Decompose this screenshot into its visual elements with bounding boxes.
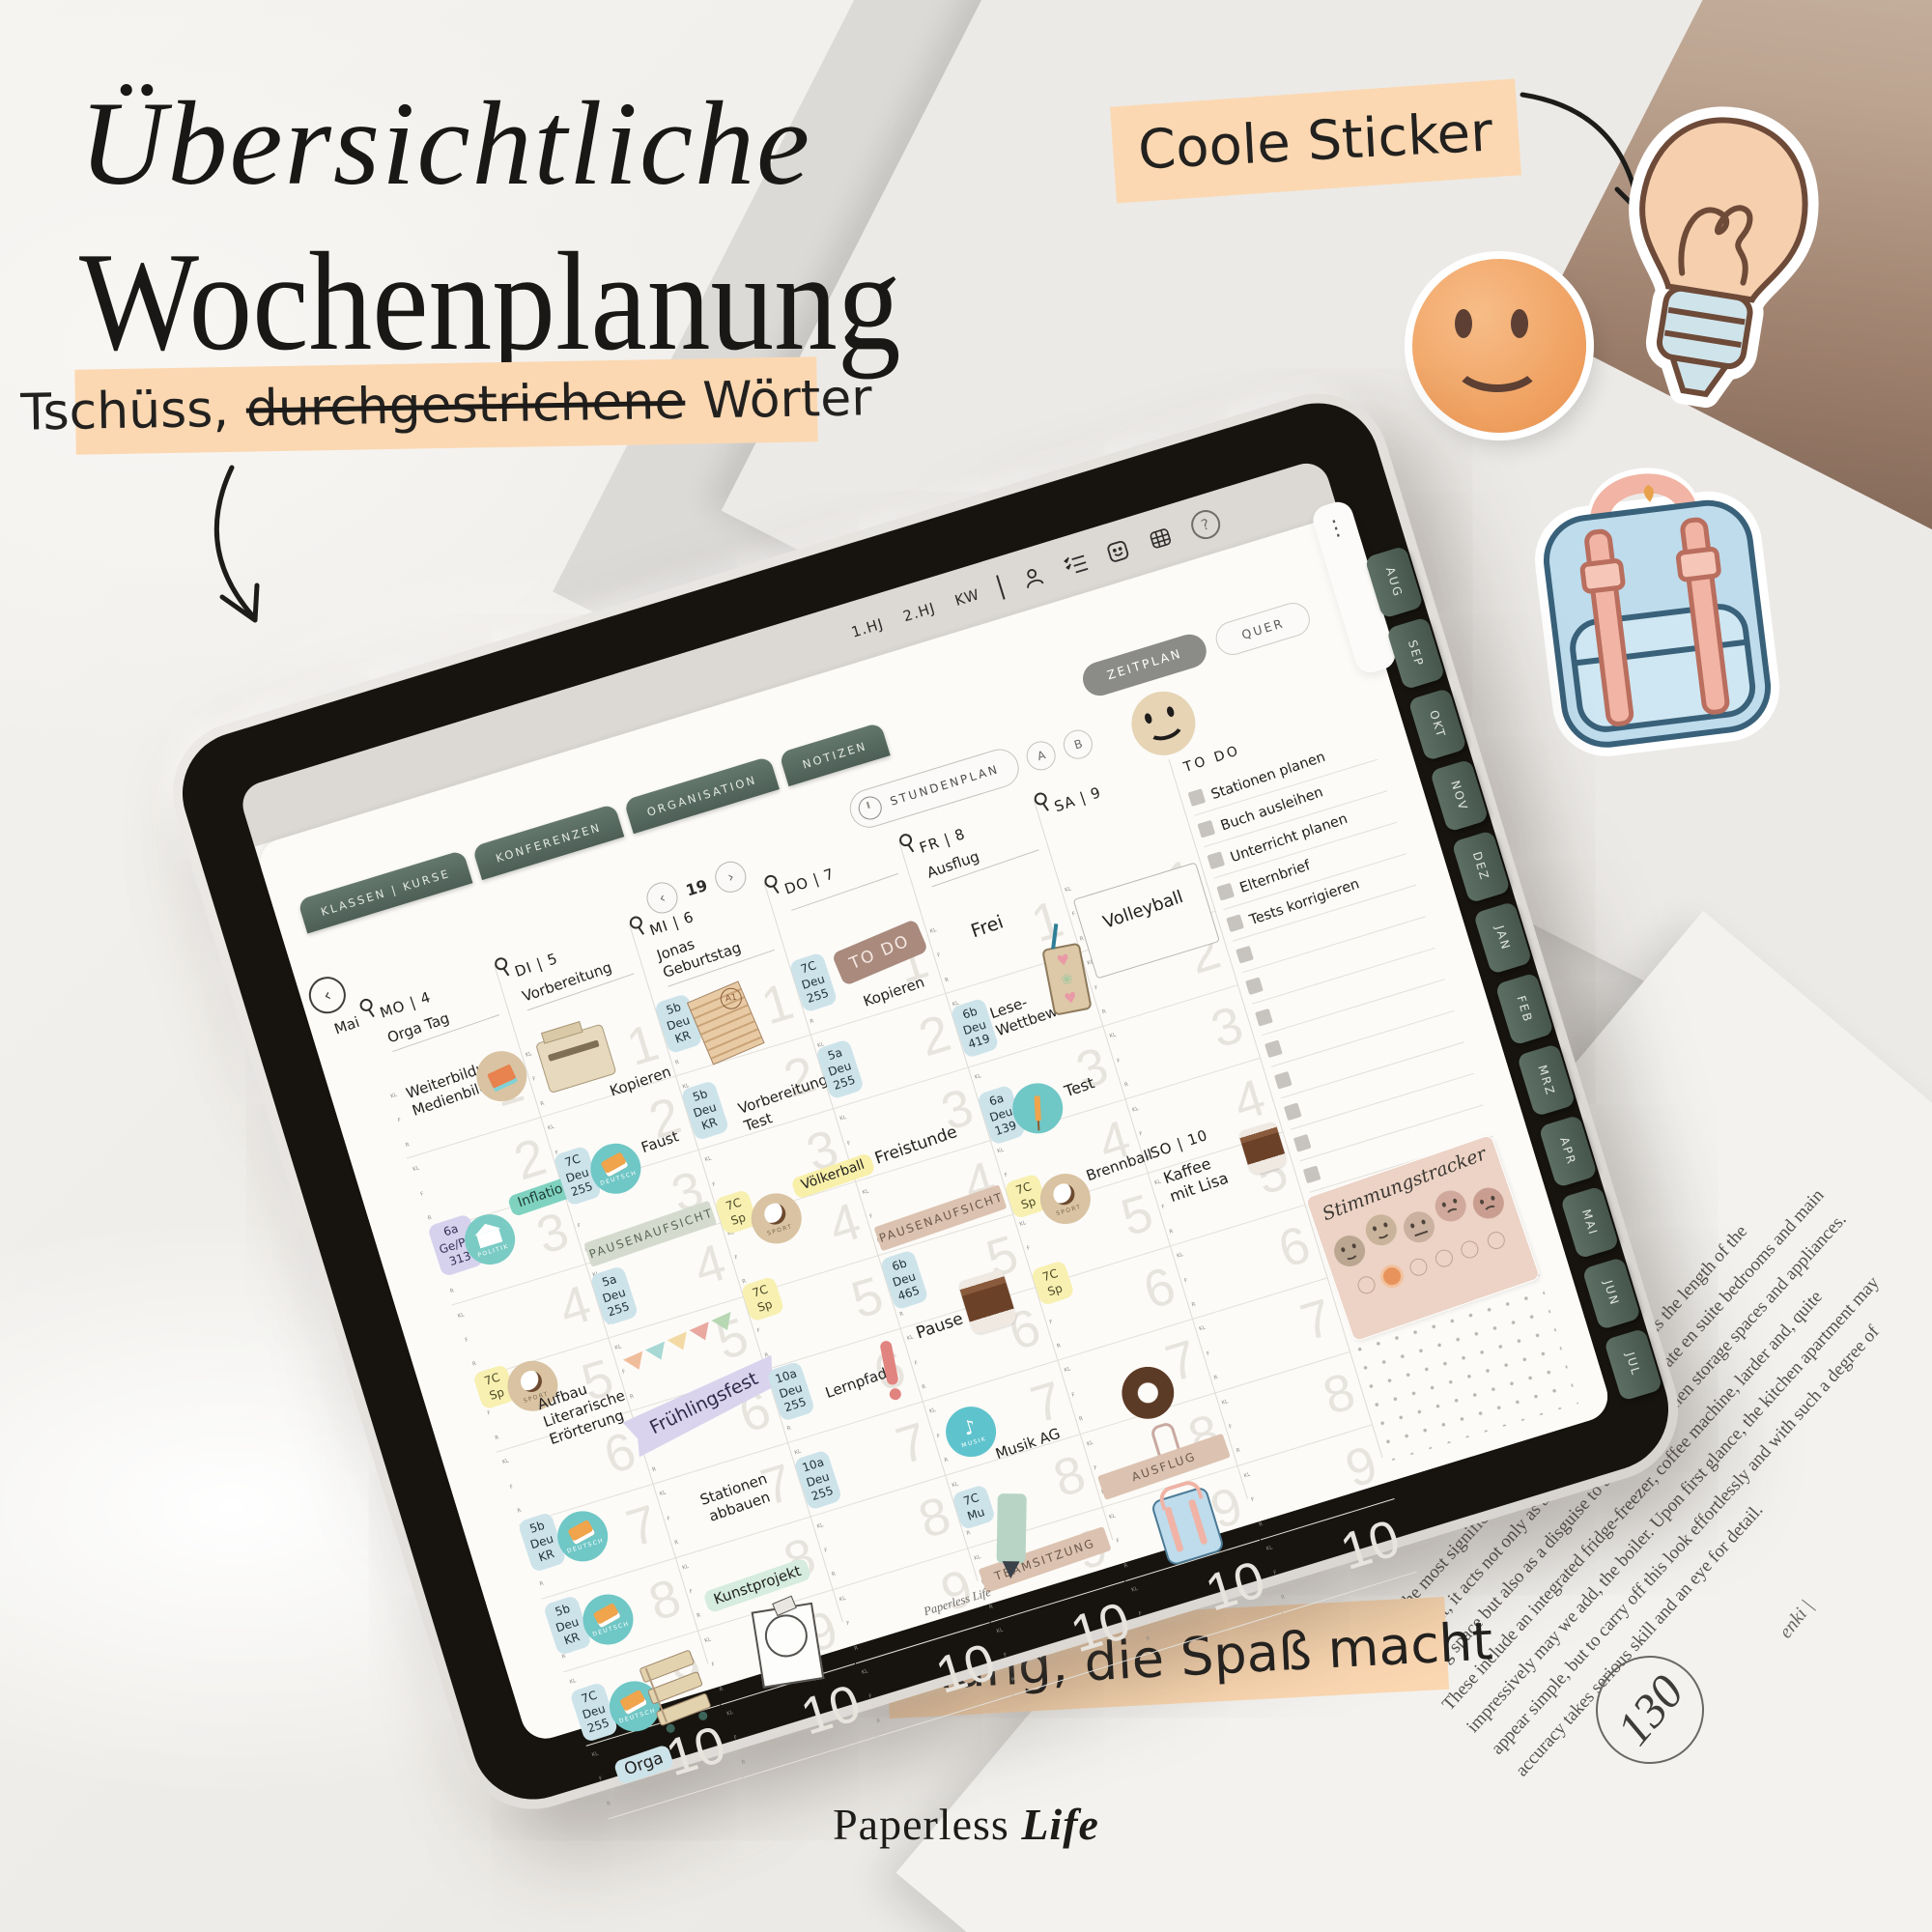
month-tab-jan[interactable]: JAN (1473, 901, 1532, 975)
zeitplan-button[interactable]: ZEITPLAN (1079, 630, 1211, 699)
promo-scene: A plan. The most significant douglas fir… (0, 0, 1932, 1932)
clock-icon (856, 793, 885, 822)
halfyear1-button[interactable]: 1.HJ (849, 615, 886, 641)
arrow-to-planner (203, 462, 319, 636)
profile-icon[interactable] (1018, 563, 1047, 592)
checkbox-icon[interactable] (1216, 883, 1235, 901)
mood-face-1[interactable] (1330, 1232, 1370, 1271)
checkbox-icon[interactable] (1197, 820, 1215, 838)
checklist-icon[interactable] (1061, 550, 1090, 579)
highlighter-sticker (997, 1493, 1027, 1564)
mood-dot-2[interactable] (1381, 1265, 1404, 1288)
checkbox-icon[interactable] (1284, 1102, 1302, 1121)
checkbox-icon[interactable] (1245, 977, 1264, 995)
pin-icon (1032, 790, 1049, 808)
month-tab-jun[interactable]: JUN (1582, 1257, 1641, 1330)
halfyear2-button[interactable]: 2.HJ (901, 599, 938, 625)
tab-organisation[interactable]: ORGANISATION (623, 756, 780, 835)
mood-dot-3[interactable] (1407, 1256, 1430, 1278)
month-tab-dez[interactable]: DEZ (1451, 830, 1510, 903)
mood-dot-6[interactable] (1485, 1230, 1507, 1252)
pin-icon (357, 996, 375, 1013)
planner-app-screen: 1.HJ 2.HJ KW ? KLASS (237, 458, 1613, 1745)
annotation-bye-strikethrough: Tschüss, durchgestrichene Wörter (74, 356, 817, 454)
checkbox-icon[interactable] (1226, 914, 1244, 932)
entry-volleyball[interactable]: Volleyball (1088, 882, 1200, 939)
month-label: Mai (332, 1013, 362, 1038)
month-tab-nov[interactable]: NOV (1430, 759, 1489, 833)
month-tab-mai[interactable]: MAI (1560, 1185, 1619, 1259)
headline-line1: Übersichtliche (79, 75, 992, 213)
month-tab-jul[interactable]: JUL (1604, 1328, 1662, 1402)
pin-icon (627, 914, 644, 931)
week-number: 19 (684, 875, 710, 899)
pin-icon (897, 832, 915, 849)
toolbar-divider (996, 575, 1006, 599)
tab-klassen-kurse[interactable]: KLASSEN | KURSE (298, 850, 473, 934)
brand-logo: Paperless Life (0, 1799, 1932, 1850)
calendar-grid-icon[interactable] (1146, 524, 1175, 553)
mood-face-4[interactable] (1431, 1186, 1470, 1226)
back-button[interactable]: ‹ (304, 973, 350, 1018)
smiley-sticker (1412, 259, 1586, 433)
checkbox-icon[interactable] (1264, 1039, 1283, 1058)
tab-notizen[interactable]: NOTIZEN (779, 723, 890, 786)
group-b-button[interactable]: B (1061, 726, 1096, 762)
mood-dot-1[interactable] (1355, 1274, 1378, 1296)
mood-dot-4[interactable] (1434, 1247, 1456, 1269)
checkbox-icon[interactable] (1187, 788, 1206, 807)
view-toggle: ZEITPLAN QUER (1079, 599, 1315, 700)
group-a-button[interactable]: A (1023, 738, 1059, 774)
mood-face-3[interactable] (1400, 1207, 1439, 1247)
month-tab-apr[interactable]: APR (1539, 1115, 1598, 1188)
headline: Übersichtliche Wochenplanung (79, 75, 992, 383)
checkbox-icon[interactable] (1207, 851, 1225, 869)
struck-word: durchgestrichene (245, 373, 686, 439)
checkbox-icon[interactable] (1303, 1165, 1321, 1183)
month-tab-mrz[interactable]: MRZ (1517, 1043, 1576, 1117)
quer-button[interactable]: QUER (1212, 599, 1314, 660)
backpack-sticker (1510, 422, 1798, 769)
mood-dot-5[interactable] (1459, 1238, 1481, 1261)
mood-face-2[interactable] (1361, 1210, 1401, 1250)
calendar-week-button[interactable]: KW (952, 585, 981, 610)
brand-logo-italic: Life (1021, 1800, 1099, 1849)
month-tab-sep[interactable]: SEP (1386, 616, 1445, 690)
mood-face-5[interactable] (1469, 1183, 1509, 1223)
tab-konferenzen[interactable]: KONFERENZEN (472, 804, 624, 880)
pin-icon (762, 872, 780, 890)
checkbox-icon[interactable] (1255, 1009, 1273, 1027)
sticker-smiley-icon[interactable] (1103, 537, 1132, 566)
more-menu-icon[interactable]: ⋮ (1324, 522, 1346, 535)
checkbox-icon[interactable] (1236, 946, 1254, 964)
help-icon[interactable]: ? (1187, 506, 1223, 542)
pin-icon (493, 955, 510, 973)
month-tab-okt[interactable]: OKT (1407, 688, 1466, 761)
checkbox-icon[interactable] (1274, 1071, 1293, 1090)
checkbox-icon[interactable] (1293, 1134, 1312, 1152)
month-tab-feb[interactable]: FEB (1494, 973, 1553, 1046)
